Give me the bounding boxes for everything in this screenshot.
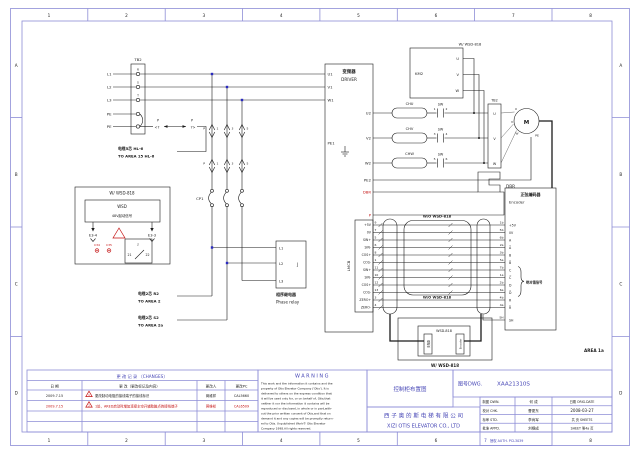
- lmcb-pin-name: SIN+: [363, 268, 371, 272]
- ruler-number: 6: [435, 438, 438, 443]
- lmcb-pin-num: 9: [375, 221, 377, 225]
- driver-pin-v1: V1: [328, 85, 334, 90]
- ruler-number: 7: [512, 13, 515, 18]
- driver-pin-pe1: PE1: [328, 141, 336, 146]
- warning-line: it will be used only for, or on behalf o…: [261, 397, 331, 401]
- wsd-signal-label: 48V起动信号: [112, 213, 133, 218]
- output-chokes: CHU CHV CHW SW SW SW 12 34 56: [373, 102, 488, 168]
- terminal-pin-t: T: [136, 94, 139, 98]
- tb2r-pin-v: V: [493, 137, 496, 141]
- company-name-en: XIZI OTIS ELEVATOR CO., LTD: [387, 424, 460, 430]
- appd-name: 刘根成: [528, 426, 539, 431]
- changes-col-person: 更改人: [206, 384, 217, 389]
- changes-title: 更 改 记 录 （CHANGES）: [116, 373, 167, 380]
- row-letter: A: [15, 63, 18, 68]
- warning-line: out the prior written consent of Otis,an…: [261, 412, 331, 416]
- sw-num: 6: [446, 157, 448, 161]
- pole-num: 5: [247, 127, 249, 131]
- dwg-no-label: 图号DWG.: [458, 382, 483, 388]
- ruler-number: 1: [48, 438, 51, 443]
- cable-note-s2-area: TO AREA 2a: [138, 323, 163, 328]
- lmcb-pin-name: SIN-: [365, 246, 372, 250]
- company-name-cn: 西 子 奥 的 斯 电 梯 有 限 公 司: [384, 412, 463, 420]
- line-label-l2: L2: [107, 85, 112, 90]
- lmcb-pin-num: 3: [375, 296, 377, 300]
- contact-21: 21: [128, 253, 132, 257]
- sw-num: 4: [446, 132, 448, 136]
- tb2-right-terminal: TB2 U V W: [488, 99, 517, 169]
- chk-name: 曹更东: [528, 408, 539, 413]
- wsd818-module-label: WSD-818: [436, 329, 452, 333]
- warning-line: delivered to others on the express condi…: [261, 392, 333, 396]
- relay-pin-l1: L1: [279, 247, 283, 251]
- lmcb-pin-num: 4: [375, 303, 377, 307]
- ruler-number: 5: [357, 438, 360, 443]
- ruler-number: 3: [202, 438, 205, 443]
- encoder-wire-num: 1a: [500, 273, 504, 277]
- change-text: 更改制动电阻的接线端子的接线标识: [95, 393, 150, 398]
- tb2r-pin-u: U: [493, 112, 496, 116]
- lmcb-pin-num: 12: [375, 281, 379, 285]
- lmcb-pin-name: COS+: [362, 253, 372, 257]
- encoder-wire-num: 2a: [500, 243, 504, 247]
- sw-num: 1: [434, 107, 436, 111]
- relay-name-cn: 相序继电器: [276, 291, 297, 297]
- sw-num: 3: [434, 132, 436, 136]
- driver-pin-pe2: PE2: [364, 178, 372, 183]
- lmcb-pin-num: 7: [375, 228, 377, 232]
- drawing-sheet: 1 2 3 4 5 6 7 8 1 2 3 4 5 6 8 A B C D A …: [0, 0, 640, 453]
- changes-col-change: 更 改（更改标记及内容）: [119, 384, 160, 389]
- row-letter: D: [15, 391, 18, 396]
- driver-title-en: DRIVER: [341, 77, 357, 82]
- row-letter: C: [15, 282, 18, 287]
- lmcb-pin-name: +5V: [364, 223, 372, 227]
- j-contact-label: J: [136, 243, 138, 247]
- encoder-title-cn: 正弦编码器: [521, 191, 542, 197]
- lmcb-pin-name: 0V: [367, 231, 372, 235]
- area-label: AREA 1a: [584, 348, 604, 353]
- change-date: 2009.7.15: [46, 394, 63, 398]
- lmcb-pin-name: ZERO-: [361, 306, 371, 310]
- lmcb-pin-num: 10: [375, 273, 379, 277]
- main-breaker-cp1: P P 1 3 5 1 3 5 CP1: [196, 74, 248, 320]
- encoder-wire-num: 6b: [500, 236, 504, 240]
- auth-label: 授权 AUTH. PCL3039: [490, 438, 523, 443]
- pole-num: 1: [217, 127, 219, 131]
- ruler-number: 1: [48, 13, 51, 18]
- sw-label: SW: [438, 153, 444, 157]
- wsd818-module: WSD-818 变频器 Encoder W/ WSD-818: [390, 314, 492, 368]
- row-letter: A: [619, 63, 622, 68]
- plug-p-bottom: P: [203, 162, 205, 166]
- encoder-wire-num: SH: [499, 316, 503, 320]
- lmcb-pin-num: 13: [375, 288, 379, 292]
- choke-chw: CHW: [405, 152, 414, 156]
- km2-pin-u: U: [456, 57, 459, 61]
- appd-label: 批准 APPD.: [483, 426, 500, 431]
- hoist-motor: M U V W PE: [373, 107, 552, 188]
- encoder-pin-sh: SH: [509, 319, 514, 323]
- lmcb-pin-name: ZERO+: [359, 298, 371, 302]
- encoder-wire-num: 5b: [500, 228, 504, 232]
- ruler-number: 6: [435, 13, 438, 18]
- plug-p-left: P: [157, 119, 159, 123]
- tb2-right-title: TB2: [490, 99, 498, 103]
- ruler-number: 3: [202, 13, 205, 18]
- c35-dot: [108, 250, 109, 251]
- lmcb-pin-num: 1: [375, 258, 377, 262]
- arrowhead: [91, 228, 94, 232]
- encoder-wire-num: 3b: [500, 251, 504, 255]
- change-text: 1处，ARED启动时增加连接主空开辅助触点的接线端子: [95, 403, 178, 408]
- std-label: 标审 STD.: [483, 417, 498, 422]
- warning-line: This work and the information it contain…: [260, 382, 333, 386]
- encoder-pin: +5V: [509, 223, 517, 227]
- sheet-number: SHEET 第4a 页: [571, 426, 594, 431]
- encoder-wire-num: 5a: [500, 258, 504, 262]
- arrowhead: [183, 125, 187, 128]
- km2-pin-w: W: [455, 89, 459, 93]
- warning-line: neither it nor the information it contai…: [261, 402, 330, 406]
- dwn-name: 何 成: [529, 399, 538, 404]
- lmcb-pin-num: 5: [375, 236, 377, 240]
- motor-pin-u: U: [515, 107, 517, 111]
- title-block: 控制柜布置图 图号DWG. XAA21310S 西 子 奥 的 斯 电 梯 有 …: [367, 370, 612, 446]
- encoder-wire-num: 4a: [500, 303, 504, 307]
- motor-m: M: [524, 120, 529, 126]
- warning-triangle-icon: [113, 228, 125, 238]
- revision-mark: 1: [88, 393, 90, 397]
- driver-pin-w1: W1: [328, 98, 335, 103]
- changes-col-pc: 更改PC: [236, 384, 248, 389]
- arrowhead: [150, 228, 153, 232]
- encoder-brace-label: 绝对值信号: [526, 280, 543, 285]
- plug-num-left: <7: [155, 126, 160, 130]
- sw-num: 2: [446, 107, 448, 111]
- driver-title-cn: 变频器: [342, 68, 356, 75]
- encoder-title-en: Encoder: [509, 200, 525, 205]
- row-letter: C: [619, 282, 622, 287]
- lmcb-connector: LMCB +5V 0V SIN+ SIN- COS+ COS- SIN+ SIN…: [346, 220, 378, 312]
- wsd818-conn-left-label: 变频器: [427, 340, 431, 348]
- ruler-number: 2: [125, 13, 128, 18]
- encoder-pin: D: [509, 283, 512, 287]
- wsd-label: WSD: [117, 204, 127, 209]
- lmcb-pin-name: SIN-: [365, 276, 372, 280]
- line-label-pe1: PE: [107, 112, 112, 117]
- change-row-1: 2009.7.15 1 更改制动电阻的接线端子的接线标识 蒋维祥 CAL5660: [46, 391, 249, 398]
- c34-dot: [96, 250, 97, 251]
- lmcb-label: LMCB: [346, 260, 351, 271]
- lmcb-pin-name: SIN+: [363, 238, 371, 242]
- schematic-canvas: 1 2 3 4 5 6 7 8 1 2 3 4 5 6 8 A B C D A …: [0, 0, 640, 453]
- encoder-wire-num: 4b: [500, 296, 504, 300]
- c34-label: C34: [94, 243, 100, 247]
- line-label-l3: L3: [107, 98, 112, 103]
- change-row-2: 2009.7.15 2 1处，ARED启动时增加连接主空开辅助触点的接线端子 蒋…: [46, 402, 249, 409]
- change-pc: CAL5660: [234, 394, 249, 398]
- encoder-pin: R: [509, 298, 512, 302]
- cable-option-bottom: W/O WSD-818: [423, 295, 452, 299]
- line-label-l1: L1: [107, 72, 112, 77]
- ruler-number: 8: [589, 13, 592, 18]
- warning-line: reproduced or disclosed, in whole or in …: [261, 407, 332, 411]
- encoder-pin: C̅: [509, 275, 512, 280]
- encoder-wire-num: 7b: [500, 266, 504, 270]
- row-letter: D: [619, 391, 622, 396]
- tb2-left-terminal: TB2 L1 L2 L3 PE PE R S T: [107, 57, 325, 134]
- pole-num: 3: [232, 127, 234, 131]
- km2-option-note: W/ WSD-818: [459, 43, 482, 47]
- choke-chu: CHU: [406, 102, 414, 106]
- cable-note-hl6-area: TO AREA 15 HL-6: [118, 154, 155, 159]
- driver-pin-u1: U1: [328, 72, 334, 77]
- ruler-number: 2: [125, 438, 128, 443]
- driver-pin-w2: W2: [365, 161, 372, 166]
- pole-num: 5: [247, 162, 249, 166]
- c35-label: C35: [106, 243, 112, 247]
- revision-mark: 2: [88, 403, 90, 407]
- ruler-number: 4: [280, 438, 283, 443]
- ground-icon: [341, 146, 349, 156]
- cp1-label: CP1: [196, 196, 204, 201]
- encoder-cable: W/O WSD-818 W/O WSD-818: [373, 215, 505, 315]
- relay-coil-label: J: [296, 262, 298, 267]
- row-letter: B: [15, 172, 18, 177]
- dwn-label: 制图 DWN.: [483, 399, 500, 404]
- km2-contactor: KM2 U V W W/ WSD-818: [410, 43, 485, 165]
- changes-table: 更 改 记 录 （CHANGES） 日 期 更 改（更改标记及内容） 更改人 更…: [27, 370, 258, 432]
- wsd-option-title: W/ WSD-818: [109, 191, 135, 196]
- tb2r-pin-w: W: [493, 162, 497, 166]
- driver-pin-v2: V2: [366, 136, 372, 141]
- cable-note-s2: 电缆2芯 S2: [138, 315, 159, 320]
- encoder-pin: 0V: [509, 231, 514, 235]
- relay-pin-l3: L3: [279, 280, 283, 284]
- relay-pin-l2: L2: [279, 262, 283, 266]
- driver-pin-dbr: DBR: [363, 190, 372, 195]
- changes-col-date: 日 期: [50, 384, 59, 389]
- std-name: 李尚军: [528, 417, 539, 422]
- lmcb-pin-num: 11: [375, 266, 379, 270]
- e3-3-label: E3-3: [148, 234, 156, 238]
- phase-relay: L1 L2 L3 J 相序继电器 Phase relay 电缆2芯 R2 TO …: [138, 241, 306, 328]
- relay-name-en: Phase relay: [276, 300, 300, 305]
- drawing-title: 控制柜布置图: [393, 385, 427, 393]
- encoder-pin: C: [509, 268, 512, 272]
- pole-num: 3: [232, 162, 234, 166]
- line-label-pe2: PE: [107, 124, 112, 129]
- wsd818-conn-right-label: Encoder: [459, 338, 463, 350]
- plug-p-top: P: [203, 127, 205, 131]
- encoder-pin: B̅: [509, 260, 512, 265]
- tb2-left-title: TB2: [133, 57, 142, 62]
- sine-encoder: 正弦编码器 Encoder 1b 5b 6b 2a 3b 5a 7b 1a 2b…: [483, 188, 556, 330]
- warning-line: property of Otis Elevator Company ('Otis…: [261, 387, 329, 391]
- ruler-number: 8: [589, 438, 592, 443]
- encoder-pin: R̅: [509, 305, 512, 310]
- lmcb-pin-name: COS-: [363, 291, 371, 295]
- cable-note-hl6: 电缆5芯 HL-6: [118, 146, 144, 151]
- warning-line: Company 1998.All rights reserved.: [261, 427, 311, 431]
- choke-chv: CHV: [406, 127, 414, 131]
- wsd-option-box: W/ WSD-818 WSD 48V起动信号 E3-4 E3-3 C34 C35…: [75, 187, 170, 264]
- lmcb-pin-name: COS-: [363, 261, 371, 265]
- pole-num: 1: [217, 162, 219, 166]
- warning-box: WARNING This work and the information it…: [258, 370, 367, 432]
- contact-22: 22: [145, 253, 149, 257]
- warning-line: demand it and any copies will be promptl…: [261, 417, 333, 421]
- terminal-pin-s: S: [137, 81, 139, 85]
- dwg-no-value: XAA21310S: [497, 382, 530, 388]
- motor-pin-pe: PE: [535, 134, 539, 138]
- encoder-pin: B: [509, 253, 511, 257]
- orig-date-label: 日期 ORIG.DATE: [570, 399, 595, 404]
- ruler-number: 5: [357, 13, 360, 18]
- change-pc: CAL6509: [234, 404, 249, 408]
- lmcb-pin-name: COS+: [362, 283, 372, 287]
- row-letter: B: [619, 172, 622, 177]
- encoder-pin: D̅: [509, 290, 512, 295]
- encoder-wire-num: 6a: [500, 288, 504, 292]
- dbr-resistor: DBR: [373, 172, 515, 215]
- ruler-number: 4: [280, 13, 283, 18]
- cable-note-r2: 电缆2芯 R2: [138, 291, 159, 296]
- lmcb-pin-num: 6: [375, 243, 377, 247]
- cable-note-r2-area: TO AREA 2: [138, 299, 161, 304]
- sheets-label: 共 页 SHEETS: [572, 417, 593, 422]
- orig-date-value: 2008-03-27: [570, 408, 594, 413]
- change-person: 蒋维祥: [206, 403, 217, 408]
- lmcb-pin-num: 8: [375, 251, 377, 255]
- driver-pin-p: P: [369, 213, 372, 218]
- change-person: 蒋维祥: [206, 393, 217, 398]
- signal-brace: [518, 267, 524, 297]
- motor-pin-v: V: [511, 120, 514, 124]
- sw-label: SW: [438, 103, 444, 107]
- wsd818-caption: W/ WSD-818: [431, 363, 459, 368]
- arrowhead: [164, 125, 168, 128]
- motor-pin-w: W: [516, 132, 519, 136]
- change-date: 2009.7.15: [46, 404, 63, 408]
- encoder-pin: A̅: [509, 245, 512, 250]
- encoder-wire-num: 2b: [500, 281, 504, 285]
- cable-shield-middle: [404, 221, 471, 296]
- driver-pin-u2: U2: [366, 111, 372, 116]
- chk-label: 校对 CHK.: [483, 408, 499, 413]
- sw-num: 5: [434, 157, 436, 161]
- ruler-number: 7: [484, 438, 487, 443]
- plug-p-right: P: [191, 119, 193, 123]
- plug-num-right: 7>: [191, 126, 196, 130]
- km2-pin-v: V: [457, 73, 460, 77]
- warning-title: WARNING: [295, 374, 330, 380]
- terminal-pin-r: R: [137, 68, 139, 72]
- sw-label: SW: [438, 128, 444, 132]
- warning-line: ed to Otis. Unpublished Work© Otis Eleva…: [261, 422, 326, 426]
- e3-4-label: E3-4: [89, 234, 98, 238]
- encoder-wire-num: 1b: [500, 221, 504, 225]
- encoder-pin: A: [509, 238, 512, 242]
- km2-label: KM2: [415, 71, 424, 76]
